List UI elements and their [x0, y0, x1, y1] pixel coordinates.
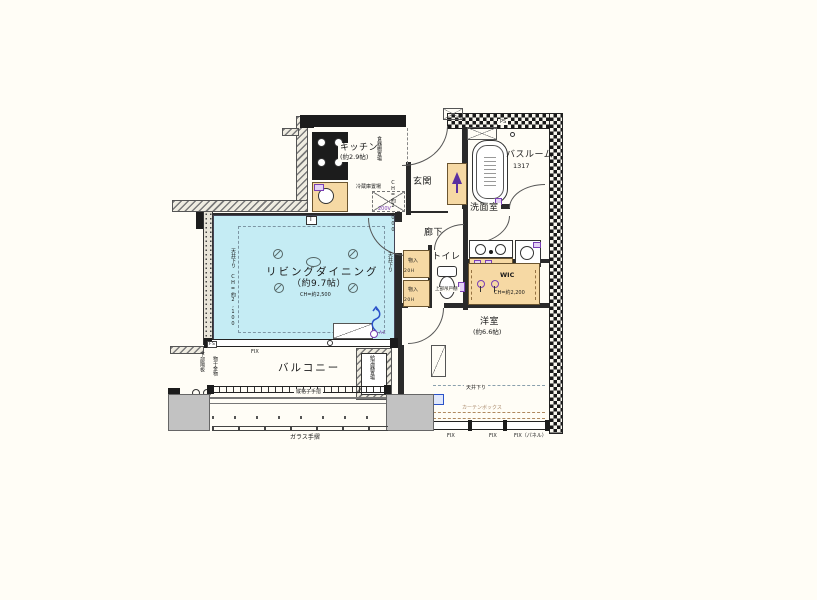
bedroom-outlet-symbol — [433, 394, 444, 405]
curtain-box-line — [433, 412, 545, 413]
downlight-icon — [274, 283, 284, 293]
terrace-line — [210, 403, 386, 404]
window-lock-icon — [327, 340, 333, 346]
curtain-box-line — [433, 418, 545, 419]
ps-duct-box — [443, 108, 463, 120]
line-entrance-step — [410, 211, 448, 213]
terrace-dot-row — [212, 416, 386, 419]
fix-label-living: FIX — [249, 349, 261, 355]
entrance-door-arc — [402, 126, 448, 166]
kitchen-size-label: (約2.9帖) — [338, 154, 370, 162]
toilet-upper-cabinet-label: 上部吊戸棚 — [433, 287, 460, 292]
lattice-rail-label: 縦格子手摺 — [294, 389, 323, 395]
curtain-box-label: カーテンボックス — [460, 405, 504, 411]
wall-kitchen-top — [300, 115, 406, 127]
toilet-label: トイレ — [432, 252, 461, 263]
meter-box — [467, 127, 497, 140]
fix-panel-label: FIX（パネル） — [514, 433, 547, 439]
bedroom-size-label: (約6.6帖) — [473, 329, 501, 337]
wall-neighbor-horizontal — [172, 200, 308, 212]
stove-burner — [317, 158, 326, 167]
storage-1-label: 物入 — [408, 258, 418, 264]
terrace-line — [210, 397, 386, 399]
washing-machine-panel — [533, 242, 541, 248]
terrace-slab-right — [386, 394, 434, 431]
window-mullion — [545, 420, 550, 431]
bathroom-label: バスルーム — [506, 150, 553, 161]
fix-label-2: FIX — [489, 433, 497, 439]
wic-ch-label: CH=約2,200 — [494, 290, 525, 296]
bedroom-ac-space — [431, 345, 446, 377]
ac-label: AC — [379, 331, 386, 336]
window-mullion — [468, 420, 472, 431]
partition-label: 下部隔板 — [199, 352, 205, 388]
glass-rail — [212, 426, 388, 431]
window-end-block — [390, 338, 398, 348]
bath-shower-fixture — [510, 132, 515, 137]
vanity-faucet — [489, 250, 493, 254]
vanity-bowl — [495, 244, 506, 255]
downlight-icon — [273, 249, 283, 259]
window-mullion — [503, 420, 507, 431]
wall-bedroom-left — [398, 345, 404, 397]
washroom-label: 洗面室 — [468, 203, 501, 214]
glass-rail-label: ガラス手摺 — [288, 434, 322, 441]
wall-hall-living-bottom — [395, 253, 402, 345]
kitchen-ch-label: CH=約2,000 — [390, 180, 396, 214]
vanity-bowl — [475, 244, 486, 255]
storage-1-height: 20H — [404, 269, 415, 274]
wic-hanger-rail — [535, 270, 536, 300]
shoe-cabinet-decor-icon — [450, 170, 464, 196]
wall-living-left — [203, 212, 213, 345]
wic-label: WIC — [500, 272, 514, 280]
terrace-slab-left — [168, 394, 210, 431]
bedroom-door-arc — [408, 308, 444, 344]
living-drop-right-label: 天井下り — [387, 252, 393, 286]
living-label: リビングダイニング — [266, 266, 379, 279]
downlight-icon — [348, 283, 358, 293]
wall-right-exterior — [549, 113, 563, 434]
storage-2-height: 20H — [404, 298, 415, 303]
living-size-label: （約9.7帖） — [292, 279, 346, 290]
rail-end-block — [384, 385, 391, 394]
living-ch-label: CH=約2,500 — [300, 292, 331, 298]
rail-end-block — [207, 385, 214, 394]
entrance-label: 玄関 — [413, 177, 432, 188]
dish-shelf-label: 食器棚置場 — [376, 136, 382, 176]
bedroom-ceiling-drop-label: 天井下り — [464, 385, 488, 391]
ps-label: PS — [498, 119, 508, 125]
wic-hanger-icon — [477, 280, 485, 288]
t-marker-label: T — [309, 216, 313, 223]
downlight-icon — [348, 249, 358, 259]
bedroom-ceiling-drop-line — [433, 385, 545, 386]
balcony-label: バルコニー — [278, 362, 340, 375]
fs-label: FS — [207, 341, 217, 348]
stove-burner — [317, 138, 326, 147]
wall-kitchen-hall — [406, 162, 411, 215]
wall-neighbor-stub — [282, 128, 299, 136]
floorplan: キッチン (約2.9帖) 食器棚置場 冷蔵庫置場 200V CH=約2,000 … — [0, 0, 817, 600]
bedroom-label: 洋室 — [480, 317, 499, 328]
floorplan-canvas: キッチン (約2.9帖) 食器棚置場 冷蔵庫置場 200V CH=約2,000 … — [0, 0, 817, 600]
storage-2-label: 物入 — [408, 287, 418, 293]
wic-hanger-rail — [471, 270, 472, 300]
ac-outlet-icon — [370, 330, 378, 338]
ceiling-light-icon — [306, 257, 321, 267]
wic-hanger-icon — [491, 280, 499, 288]
fix-label-1: FIX — [447, 433, 455, 439]
living-window — [210, 339, 395, 347]
wall-corner-block — [300, 115, 314, 128]
fridge-label: 冷蔵庫置場 — [356, 184, 381, 190]
washing-machine-drum — [520, 246, 534, 260]
bathtub-drain-texture — [484, 157, 496, 187]
living-step-box — [333, 323, 373, 339]
bathroom-door-arc — [509, 184, 545, 208]
bathroom-size-label: 1317 — [513, 163, 530, 171]
living-drop-left-label: 天井下り CH=約2,100 — [228, 248, 238, 326]
bedroom-fix-window — [430, 421, 550, 430]
ac-swirl-icon — [369, 303, 383, 333]
kitchen-outlet-symbol — [314, 184, 324, 191]
